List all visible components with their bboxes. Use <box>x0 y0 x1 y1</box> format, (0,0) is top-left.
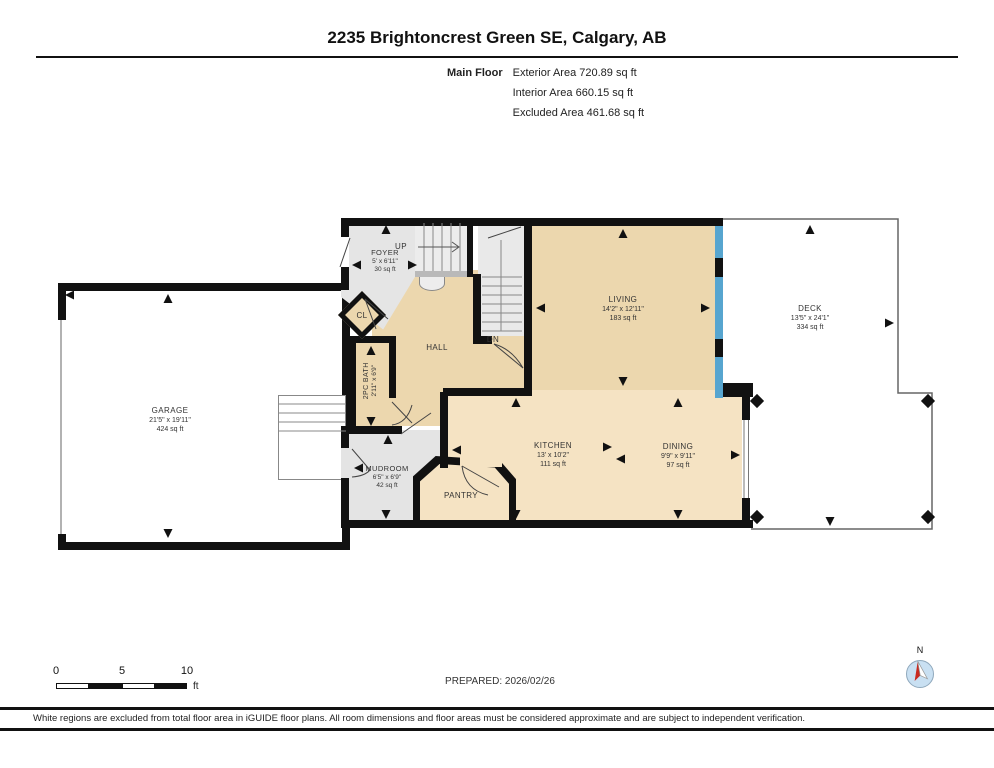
stair-bottom-door-leaf <box>494 344 523 368</box>
scale-unit: ft <box>193 681 199 692</box>
plan-linework <box>0 0 994 768</box>
pantry-door-leaf <box>462 466 499 487</box>
prepared-date: PREPARED: 2026/02/26 <box>400 676 600 687</box>
scale-bar-segment <box>56 683 89 689</box>
garage-steps-treads <box>278 404 346 431</box>
floor-plan-page: 2235 Brightoncrest Green SE, Calgary, AB… <box>0 0 994 768</box>
scale-tick-10: 10 <box>179 665 195 677</box>
dimension-arrow <box>164 294 173 303</box>
compass-icon <box>907 660 934 687</box>
dining-window-lines <box>744 420 749 498</box>
footer-rule-bottom <box>0 728 994 731</box>
dimension-arrow <box>452 446 461 455</box>
dimension-arrow <box>806 225 815 234</box>
deck-post <box>921 510 935 524</box>
dimension-arrow <box>65 291 74 300</box>
scale-bar-segment <box>122 683 155 689</box>
dimension-arrow <box>384 435 393 444</box>
dimension-arrow <box>674 510 683 519</box>
dimension-arrow <box>603 443 612 452</box>
dimension-arrow <box>619 229 628 238</box>
dimension-arrow <box>731 451 740 460</box>
dimension-arrow <box>354 464 363 473</box>
bath-door-arc <box>392 405 412 425</box>
stairs-down-treads <box>482 240 522 331</box>
dimension-arrow <box>512 398 521 407</box>
scale-tick-0: 0 <box>51 665 61 677</box>
dimension-arrow <box>616 455 625 464</box>
scale-bar-segment <box>155 683 187 689</box>
deck-outline <box>723 219 932 529</box>
compass-north-label: N <box>912 645 928 655</box>
dimension-arrow <box>367 417 376 426</box>
dimension-arrow <box>536 304 545 313</box>
deck-post <box>750 394 764 408</box>
stair-top-door-leaf <box>488 227 521 238</box>
disclaimer: White regions are excluded from total fl… <box>33 713 805 724</box>
dimension-arrow <box>352 261 361 270</box>
door-swings <box>340 227 523 495</box>
scale-bar-segment <box>89 683 122 689</box>
dimension-arrow <box>512 510 521 519</box>
deck-post <box>750 510 764 524</box>
pantry-door-arc <box>462 466 488 495</box>
dimension-arrow <box>382 510 391 519</box>
dimension-arrow <box>674 398 683 407</box>
dimension-arrows <box>65 225 894 538</box>
dimension-arrow <box>382 225 391 234</box>
front-door-leaf <box>340 238 350 267</box>
dimension-arrow <box>619 377 628 386</box>
dimension-arrow <box>164 529 173 538</box>
dimension-arrow <box>701 304 710 313</box>
scale-tick-5: 5 <box>117 665 127 677</box>
deck-posts <box>750 394 935 524</box>
dimension-arrow <box>408 261 417 270</box>
dimension-arrow <box>885 319 894 328</box>
dimension-arrow <box>367 346 376 355</box>
dimension-arrow <box>826 517 835 526</box>
footer-rule-top <box>0 707 994 710</box>
deck-post <box>921 394 935 408</box>
